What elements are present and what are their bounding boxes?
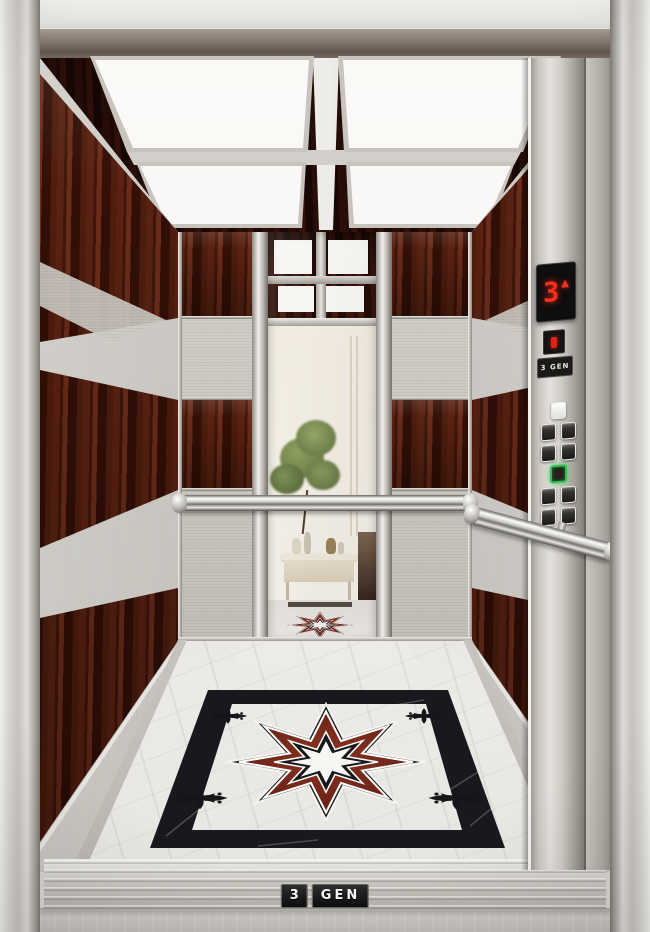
threshold-brand-badge: 3 GEN <box>281 884 369 908</box>
floor-trim <box>178 637 472 641</box>
up-arrow-icon: ▲ <box>561 277 569 289</box>
floor-number: 3 <box>543 276 559 308</box>
door-frame-right <box>610 0 650 932</box>
service-indicator <box>543 329 565 355</box>
floor-button-r2-left[interactable] <box>541 444 556 462</box>
door-frame-left <box>0 0 40 932</box>
floor-indicator-display: 3 ▲ <box>536 261 576 322</box>
red-indicator-icon <box>551 336 557 348</box>
button-row <box>541 421 576 441</box>
mirror-frame-right <box>376 232 392 642</box>
brand-badge-word: GEN <box>312 884 369 908</box>
floor-medallion-art <box>140 676 530 864</box>
button-row <box>541 485 576 505</box>
handrail-back <box>176 495 474 511</box>
mirror-glass-sheen <box>268 232 376 642</box>
floor-button-r3-right[interactable] <box>561 485 576 503</box>
wall-trim <box>178 232 182 642</box>
front-return-panel <box>586 58 612 870</box>
mirror <box>268 232 376 642</box>
button-stack <box>538 400 578 526</box>
brand-badge-number: 3 <box>281 884 308 908</box>
cop-button-top[interactable] <box>551 401 566 419</box>
elevator-cabin: 3 GEN 3 ▲ 3 GEN <box>0 0 650 932</box>
floor-button-r2-right[interactable] <box>561 442 576 460</box>
wall-trim <box>468 232 472 642</box>
button-row <box>551 401 566 419</box>
button-row <box>550 464 567 483</box>
floor-button-r1-right[interactable] <box>561 421 576 439</box>
floor-button-r3-left[interactable] <box>541 487 556 505</box>
mirror-frame-left <box>252 232 268 642</box>
cop-button-green-highlight[interactable] <box>550 464 567 483</box>
cabin-header-panel <box>0 0 650 30</box>
floor-button-r1-left[interactable] <box>541 423 556 441</box>
button-row <box>541 442 576 462</box>
brand-plate: 3 GEN <box>537 355 573 378</box>
ceiling-fascia <box>38 28 612 59</box>
